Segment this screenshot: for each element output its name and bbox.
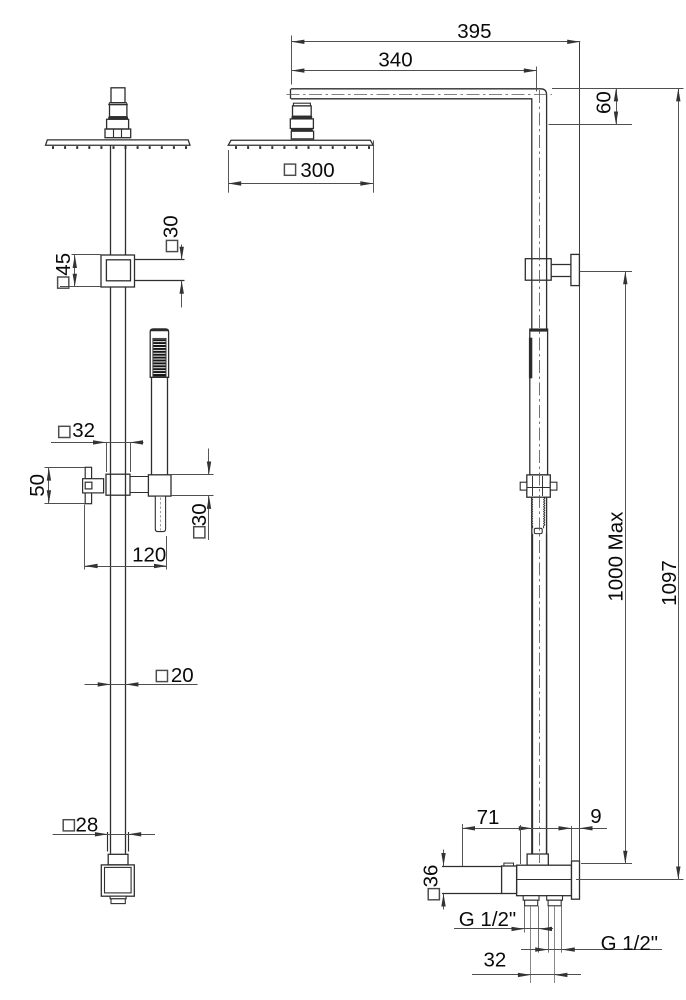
svg-text:71: 71 [477, 806, 500, 829]
svg-text:60: 60 [593, 91, 616, 114]
svg-text:1000 Max: 1000 Max [605, 511, 628, 602]
svg-text:20: 20 [171, 664, 194, 687]
svg-text:120: 120 [132, 543, 166, 566]
svg-text:30: 30 [188, 503, 211, 526]
svg-text:32: 32 [483, 949, 506, 972]
svg-text:340: 340 [378, 49, 412, 72]
svg-text:G 1/2": G 1/2" [459, 908, 516, 931]
svg-text:36: 36 [419, 865, 442, 888]
svg-text:32: 32 [72, 419, 95, 442]
svg-text:45: 45 [52, 253, 75, 276]
svg-text:1097: 1097 [658, 560, 681, 606]
svg-text:50: 50 [26, 474, 49, 497]
svg-text:9: 9 [590, 805, 601, 828]
svg-text:300: 300 [300, 159, 334, 182]
svg-text:30: 30 [160, 215, 183, 238]
svg-text:395: 395 [457, 20, 491, 43]
svg-text:28: 28 [75, 814, 98, 837]
svg-text:G 1/2": G 1/2" [601, 932, 658, 955]
